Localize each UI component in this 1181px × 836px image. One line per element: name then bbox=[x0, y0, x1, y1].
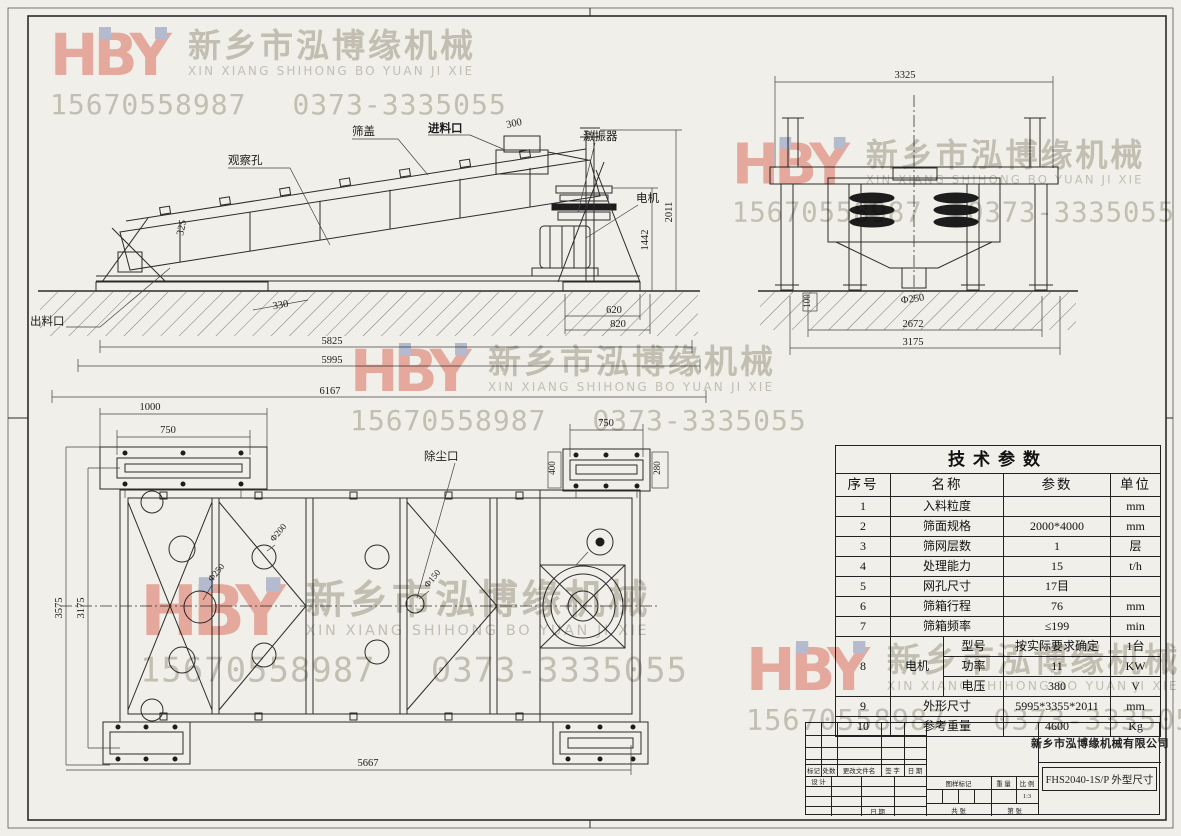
dim-5667: 5667 bbox=[358, 758, 379, 769]
foot-pad-top-left bbox=[100, 447, 267, 489]
label-exciter: 激振器 bbox=[583, 129, 618, 143]
dim-620: 620 bbox=[606, 305, 622, 316]
tb-label-sheet-number: 第 张 bbox=[991, 803, 1038, 816]
table-row: 3筛网层数1层 bbox=[836, 537, 1161, 557]
label-observation-hole: 观察孔 bbox=[228, 153, 263, 167]
tb-label-scale: 比 例 bbox=[1016, 776, 1038, 789]
table-row: 2筛面规格2000*4000mm bbox=[836, 517, 1161, 537]
dim-5995: 5995 bbox=[322, 355, 343, 366]
table-title: 技术参数 bbox=[836, 446, 1161, 474]
drawing-title: FHS2040-1S/P 外型尺寸 bbox=[1042, 767, 1157, 791]
tb-label-total-sheets: 共 张 bbox=[926, 803, 991, 816]
label-motor: 电机 bbox=[636, 191, 659, 205]
end-view: 3325 Φ250 100 bbox=[758, 70, 1078, 355]
drive-section bbox=[540, 529, 625, 648]
tb-label-date: 日 期 bbox=[904, 764, 926, 776]
callout-phi200: Φ200 bbox=[268, 521, 289, 543]
hole-phi150 bbox=[406, 595, 424, 613]
tb-label-date2: 日 期 bbox=[861, 806, 894, 816]
tb-label-mark: 标记 bbox=[806, 764, 821, 776]
feed-inlet-chute bbox=[496, 136, 588, 174]
table-row: 4处理能力15t/h bbox=[836, 557, 1161, 577]
side-view: 观察孔 筛盖 进料口 300 激振器 电机 出料口 325 2011 1442 … bbox=[30, 117, 706, 403]
dim-6167: 6167 bbox=[320, 386, 341, 397]
label-feed-inlet: 进料口 bbox=[428, 121, 463, 135]
dim-1442: 1442 bbox=[640, 230, 651, 251]
tb-label-change-file: 更改文件名 bbox=[837, 764, 881, 776]
tb-label-weight: 重 量 bbox=[991, 776, 1016, 789]
dim-3325: 3325 bbox=[895, 70, 916, 81]
hole-phi200 bbox=[252, 545, 276, 569]
foot-pad-bottom-right bbox=[553, 722, 648, 764]
tb-label-design: 设 计 bbox=[806, 776, 831, 786]
dim-300: 300 bbox=[505, 117, 523, 131]
dim-5825: 5825 bbox=[322, 336, 343, 347]
title-block: 新乡市泓博缘机械有限公司 FHS2040-1S/P 外型尺寸 标记 处数 更改文… bbox=[805, 722, 1160, 815]
callout-phi250: Φ250 bbox=[206, 561, 227, 583]
dim-3175-plan: 3175 bbox=[76, 598, 87, 619]
dim-820: 820 bbox=[610, 319, 626, 330]
drawing-sheet: 观察孔 筛盖 进料口 300 激振器 电机 出料口 325 2011 1442 … bbox=[0, 0, 1181, 836]
table-row: 7筛箱频率≤199min bbox=[836, 617, 1161, 637]
foot-pad-top-right bbox=[563, 449, 650, 491]
table-row: 9外形尺寸5995*3355*2011mm bbox=[836, 697, 1161, 717]
dim-2011: 2011 bbox=[664, 202, 675, 223]
dim-1000: 1000 bbox=[140, 402, 161, 413]
table-header-row: 序号 名称 参数 单位 bbox=[836, 474, 1161, 497]
tb-scale-value: 1:3 bbox=[1016, 789, 1038, 803]
dim-3575: 3575 bbox=[54, 598, 65, 619]
label-discharge-port: 出料口 bbox=[30, 314, 65, 328]
tb-label-qty: 处数 bbox=[821, 764, 837, 776]
technical-parameters-table: 技术参数 序号 名称 参数 单位 1入料粒度mm 2筛面规格2000*4000m… bbox=[835, 445, 1161, 737]
label-dust-port: 除尘口 bbox=[424, 449, 459, 463]
dim-750-right: 750 bbox=[598, 418, 614, 429]
table-row: 1入料粒度mm bbox=[836, 497, 1161, 517]
table-row: 5网孔尺寸17目 bbox=[836, 577, 1161, 597]
dim-2672: 2672 bbox=[903, 319, 924, 330]
tb-label-sign: 签 字 bbox=[881, 764, 904, 776]
company-name: 新乡市泓博缘机械有限公司 bbox=[1039, 723, 1161, 762]
table-row: 6筛箱行程76mm bbox=[836, 597, 1161, 617]
foot-pad-bottom-left bbox=[103, 722, 190, 764]
label-screen-cover: 筛盖 bbox=[352, 124, 375, 138]
dim-280: 280 bbox=[652, 461, 662, 475]
plan-view: 1000 750 750 400 280 bbox=[54, 402, 668, 775]
dim-3175-end: 3175 bbox=[903, 337, 924, 348]
table-row-motor: 8 电机 型号 按实际要求确定 1台 bbox=[836, 637, 1161, 657]
hole-phi250 bbox=[184, 591, 216, 623]
dim-100: 100 bbox=[802, 294, 812, 308]
tb-label-stamp: 图样标记 bbox=[926, 776, 991, 789]
motor-shape bbox=[532, 226, 598, 276]
dim-325: 325 bbox=[175, 219, 189, 237]
dim-750-left: 750 bbox=[160, 425, 176, 436]
dim-400: 400 bbox=[547, 461, 557, 475]
